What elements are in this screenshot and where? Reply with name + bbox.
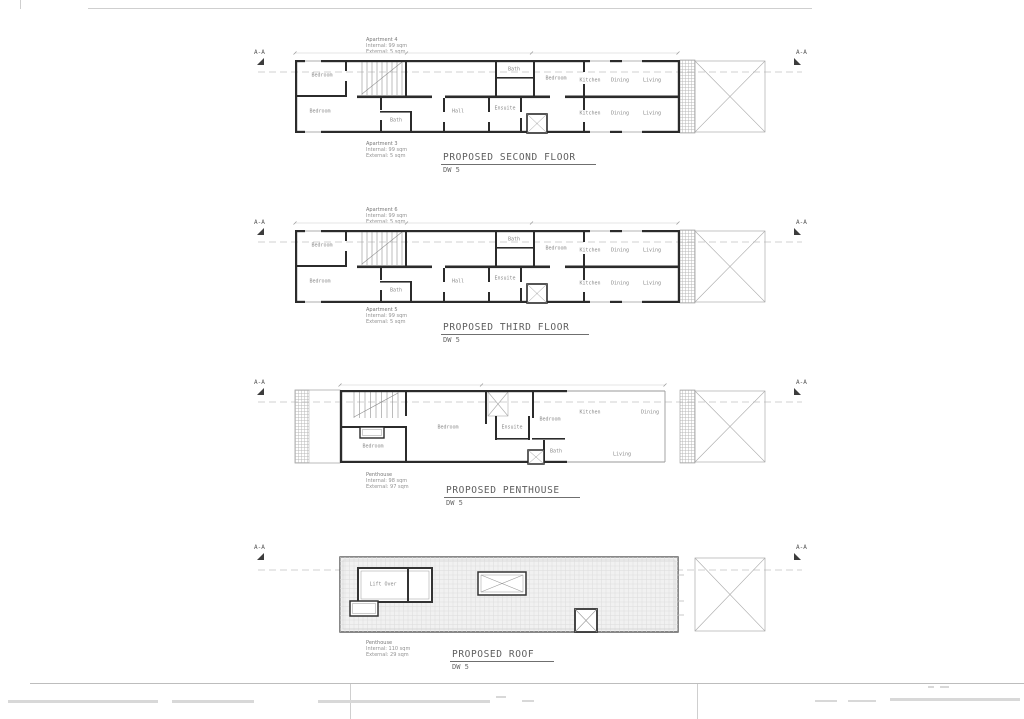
section-marker-right: A-A	[794, 380, 807, 395]
titleblock-placeholder-line	[172, 700, 254, 703]
room-label-kitchen: Kitchen	[579, 249, 600, 254]
titleblock-top-line	[30, 683, 1024, 684]
titleblock-placeholder-line	[318, 700, 490, 703]
section-marker-label: A-A	[794, 220, 807, 226]
room-label-kitchen: Kitchen	[579, 79, 600, 84]
drawing-number: DW 5	[450, 663, 554, 671]
room-label-ensuite: Ensuite	[501, 426, 522, 431]
section-marker-right: A-A	[794, 545, 807, 560]
room-label-living: Living	[643, 112, 661, 117]
section-marker-left: A-A	[252, 220, 265, 235]
room-label-bedroom: Bedroom	[311, 74, 332, 79]
titleblock-placeholder-line	[928, 686, 934, 688]
apartment-note-lower-second: Apartment 3 Internal: 99 sqm External: 5…	[366, 141, 438, 159]
section-marker-label: A-A	[252, 50, 265, 56]
room-label-kitchen: Kitchen	[579, 282, 600, 287]
section-arrow-icon	[794, 553, 801, 560]
section-arrow-icon	[257, 228, 264, 235]
titleblock-placeholder-line	[940, 686, 949, 688]
room-label-ensuite: Ensuite	[494, 277, 515, 282]
room-label-bedroom: Bedroom	[539, 418, 560, 423]
section-arrow-icon	[257, 553, 264, 560]
titleblock-placeholder-line	[890, 698, 1020, 701]
roof-note: Penthouse Internal: 110 sqm External: 29…	[366, 640, 438, 658]
room-label-bath: Bath	[390, 119, 402, 124]
third-floor-plan: A-A A-A Bedroom Bedroom Bath Bath Ensuit…	[250, 218, 812, 318]
room-label-bedroom: Bedroom	[309, 280, 330, 285]
section-arrow-icon	[257, 58, 264, 65]
room-label-kitchen: Kitchen	[579, 112, 600, 117]
note-line: External: 5 sqm	[366, 319, 438, 325]
section-marker-label: A-A	[252, 380, 265, 386]
section-arrow-icon	[794, 58, 801, 65]
sheet-frame-left-tick	[20, 0, 21, 9]
drawing-sheet: Apartment 4 Internal: 99 sqm External: 5…	[0, 0, 1024, 719]
section-marker-left: A-A	[252, 545, 265, 560]
room-label-kitchen: Kitchen	[579, 411, 600, 416]
room-label-dining: Dining	[611, 112, 629, 117]
penthouse-plan-drawing	[250, 378, 812, 478]
titleblock-placeholder-line	[848, 700, 876, 702]
room-label-bedroom: Bedroom	[437, 426, 458, 431]
titleblock-placeholder-line	[8, 700, 158, 703]
note-line: External: 97 sqm	[366, 484, 438, 490]
plan-title-second-floor: PROPOSED SECOND FLOOR DW 5	[441, 145, 596, 174]
section-marker-label: A-A	[252, 220, 265, 226]
drawing-number: DW 5	[444, 499, 580, 507]
room-label-dining: Dining	[641, 411, 659, 416]
section-marker-right: A-A	[794, 50, 807, 65]
section-marker-left: A-A	[252, 380, 265, 395]
plan-title-penthouse: PROPOSED PENTHOUSE DW 5	[444, 478, 580, 507]
section-marker-left: A-A	[252, 50, 265, 65]
section-marker-label: A-A	[794, 50, 807, 56]
plan-title-roof: PROPOSED ROOF DW 5	[450, 642, 554, 671]
plan-title-text: PROPOSED PENTHOUSE	[444, 485, 580, 498]
room-label-bedroom: Bedroom	[362, 445, 383, 450]
room-label-living: Living	[643, 282, 661, 287]
plan-title-text: PROPOSED ROOF	[450, 649, 554, 662]
sheet-frame-top-line	[88, 8, 812, 9]
room-label-hall: Hall	[452, 110, 464, 115]
apartment-note-lower-third: Apartment 5 Internal: 99 sqm External: 5…	[366, 307, 438, 325]
plan-title-text: PROPOSED THIRD FLOOR	[441, 322, 589, 335]
room-label-lift: Lift Over	[369, 583, 396, 588]
room-label-dining: Dining	[611, 249, 629, 254]
section-arrow-icon	[257, 388, 264, 395]
room-label-living: Living	[613, 453, 631, 458]
section-marker-label: A-A	[794, 545, 807, 551]
room-label-bedroom: Bedroom	[545, 77, 566, 82]
plan-title-text: PROPOSED SECOND FLOOR	[441, 152, 596, 165]
third-floor-plan-drawing	[250, 218, 812, 318]
room-label-bath: Bath	[508, 238, 520, 243]
section-marker-label: A-A	[252, 545, 265, 551]
roof-plan-drawing	[250, 543, 812, 643]
section-arrow-icon	[794, 228, 801, 235]
note-line: External: 29 sqm	[366, 652, 438, 658]
room-label-hall: Hall	[452, 280, 464, 285]
room-label-bedroom: Bedroom	[309, 110, 330, 115]
room-label-bath: Bath	[390, 289, 402, 294]
drawing-number: DW 5	[441, 336, 589, 344]
penthouse-note: Penthouse Internal: 98 sqm External: 97 …	[366, 472, 438, 490]
room-label-bath: Bath	[550, 450, 562, 455]
room-label-dining: Dining	[611, 282, 629, 287]
titleblock-placeholder-line	[815, 700, 837, 702]
penthouse-plan: A-A A-A Bedroom Bedroom Bedroom Ensuite …	[250, 378, 812, 478]
note-line: External: 5 sqm	[366, 153, 438, 159]
titleblock-placeholder-line	[522, 700, 534, 702]
plan-title-third-floor: PROPOSED THIRD FLOOR DW 5	[441, 315, 589, 344]
second-floor-plan-drawing	[250, 48, 812, 148]
room-label-bedroom: Bedroom	[545, 247, 566, 252]
section-arrow-icon	[794, 388, 801, 395]
section-marker-label: A-A	[794, 380, 807, 386]
room-label-living: Living	[643, 79, 661, 84]
second-floor-plan: A-A A-A Bedroom Bedroom Bath Bath Ensuit…	[250, 48, 812, 148]
room-label-bath: Bath	[508, 68, 520, 73]
titleblock-divider	[697, 684, 698, 719]
roof-plan: A-A A-A Lift Over	[250, 543, 812, 643]
room-label-living: Living	[643, 249, 661, 254]
room-label-bedroom: Bedroom	[311, 244, 332, 249]
room-label-ensuite: Ensuite	[494, 107, 515, 112]
section-marker-right: A-A	[794, 220, 807, 235]
drawing-number: DW 5	[441, 166, 596, 174]
room-label-dining: Dining	[611, 79, 629, 84]
titleblock-placeholder-line	[496, 696, 506, 698]
